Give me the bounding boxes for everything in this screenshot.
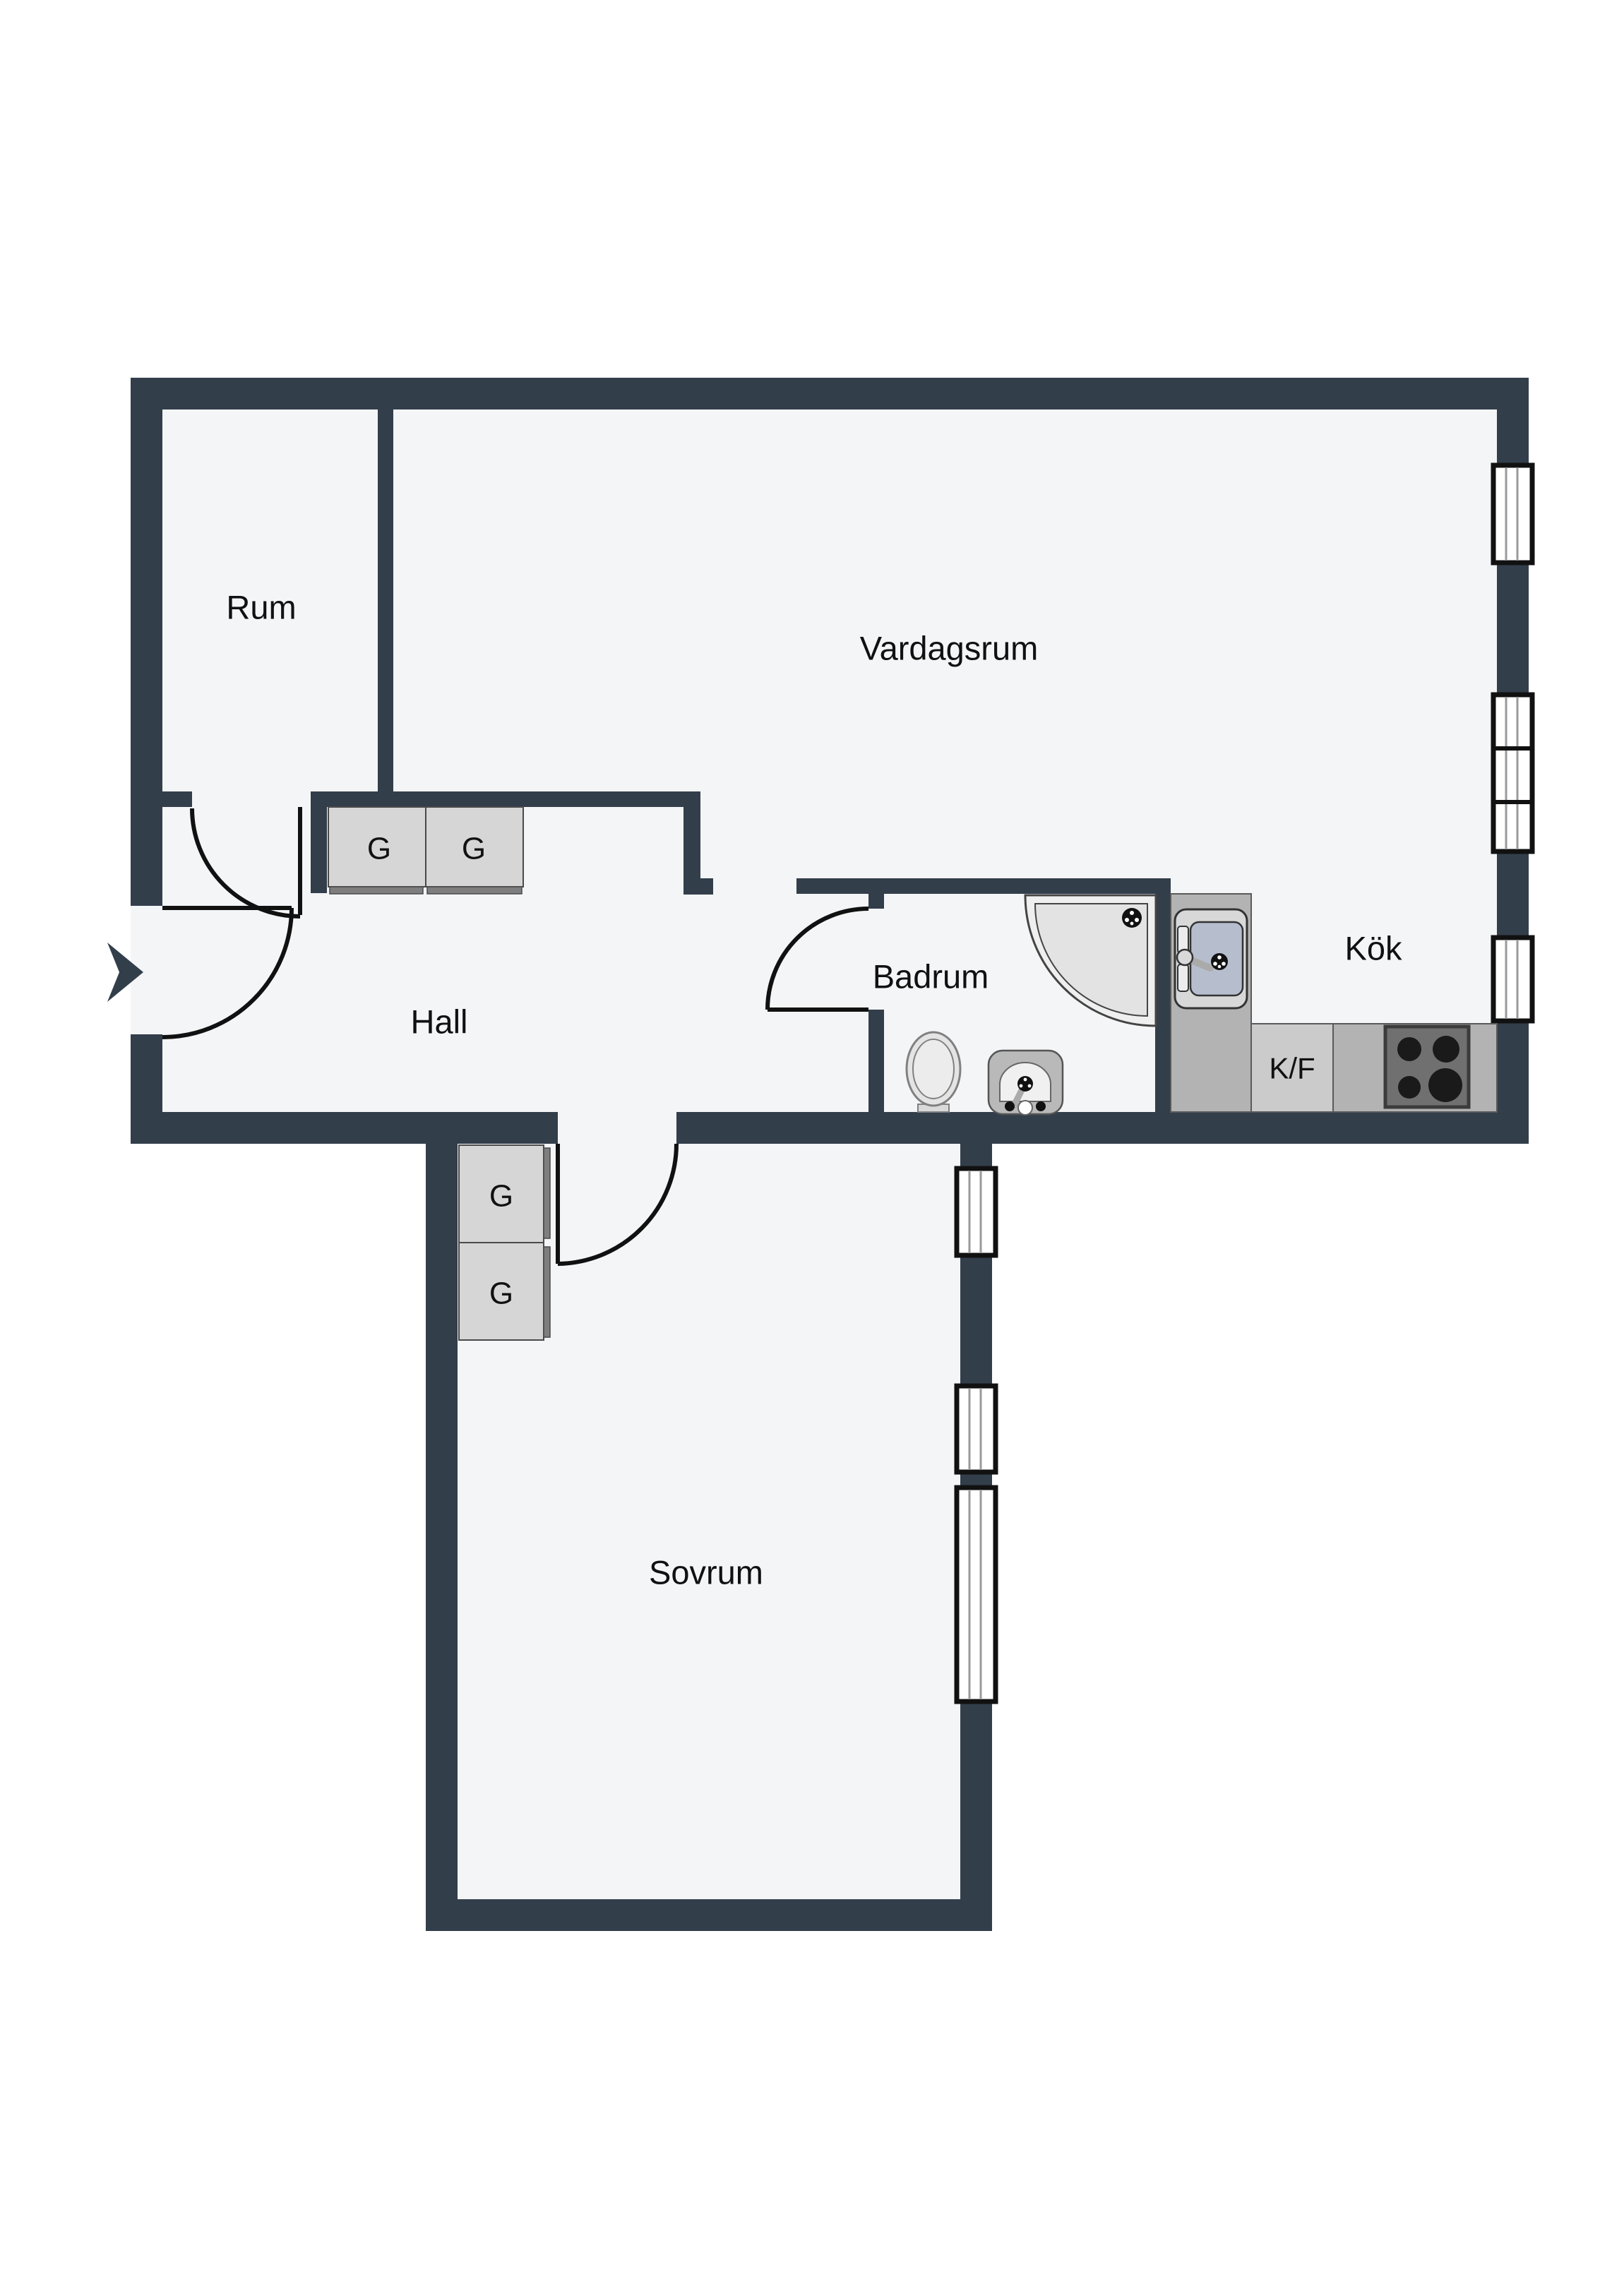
wardrobe-label: G — [367, 832, 391, 866]
wall-exterior-bottom-left — [131, 1112, 558, 1144]
wall-rum-door-jamb — [311, 807, 327, 893]
wall-badrum-east — [1155, 894, 1171, 1112]
wall-hall-north — [311, 791, 685, 807]
wall-rum-vardagsrum-divider — [378, 409, 393, 794]
room-label-hall: Hall — [411, 1003, 468, 1041]
wall-exterior-left-lower — [131, 1034, 162, 1112]
window-vardagsrum-2-triple — [1493, 695, 1532, 851]
window-kok-1 — [1493, 938, 1532, 1021]
washbasin-icon — [989, 1051, 1063, 1115]
wardrobe-sovrum: G G — [459, 1145, 550, 1340]
kitchen-sink-icon — [1175, 909, 1247, 1008]
wall-sovrum-bottom — [426, 1899, 992, 1931]
wall-hall-north-stub — [162, 791, 192, 807]
burner-top-left — [1397, 1037, 1421, 1061]
room-label-sovrum: Sovrum — [649, 1554, 763, 1591]
wardrobe-label: G — [489, 1276, 513, 1311]
wall-badrum-north — [796, 878, 1171, 894]
wall-exterior-bottom-right — [676, 1112, 1529, 1144]
wardrobe-label: G — [489, 1179, 513, 1214]
room-label-badrum: Badrum — [873, 958, 989, 995]
room-label-kok: Kök — [1345, 930, 1402, 967]
floor-plan-canvas: G G G G Rum — [0, 0, 1624, 2296]
room-label-rum: Rum — [226, 589, 296, 626]
window-sovrum-3 — [957, 1488, 996, 1702]
floor-upper-block — [162, 409, 1497, 1112]
room-label-vardagsrum: Vardagsrum — [860, 630, 1039, 667]
burner-bottom-left — [1398, 1076, 1421, 1099]
window-sovrum-1 — [957, 1168, 996, 1255]
wall-badrum-west — [868, 1010, 884, 1112]
floor-sovrum-doorway — [558, 1112, 676, 1144]
fridge-freezer-label: K/F — [1269, 1052, 1315, 1085]
wardrobe-label: G — [462, 832, 486, 866]
window-vardagsrum-1 — [1493, 465, 1532, 563]
burner-bottom-right — [1428, 1068, 1462, 1102]
wall-badrum-door-jamb — [868, 894, 884, 909]
burner-top-right — [1433, 1036, 1459, 1063]
wall-hall-return-foot — [700, 878, 713, 895]
wall-hall-return — [683, 791, 700, 895]
window-sovrum-2 — [957, 1386, 996, 1472]
wall-sovrum-left — [426, 1144, 458, 1931]
wall-exterior-top — [131, 378, 1529, 409]
wardrobe-hall: G G — [328, 807, 523, 894]
floors — [131, 409, 1497, 1899]
stove-icon — [1385, 1027, 1469, 1107]
wall-exterior-left-upper — [131, 409, 162, 906]
floor-plan-page: G G G G Rum — [0, 0, 1624, 2296]
